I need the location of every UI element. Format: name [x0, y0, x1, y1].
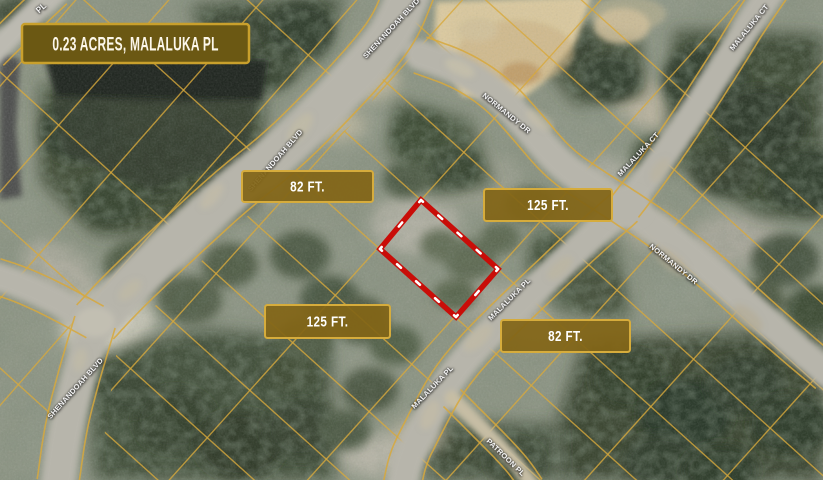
svg-text:82 FT.: 82 FT.	[548, 328, 583, 345]
svg-text:82 FT.: 82 FT.	[290, 178, 325, 195]
svg-text:125 FT.: 125 FT.	[307, 313, 349, 330]
svg-text:0.23 ACRES, MALALUKA PL: 0.23 ACRES, MALALUKA PL	[52, 35, 218, 55]
svg-text:125 FT.: 125 FT.	[527, 197, 569, 214]
